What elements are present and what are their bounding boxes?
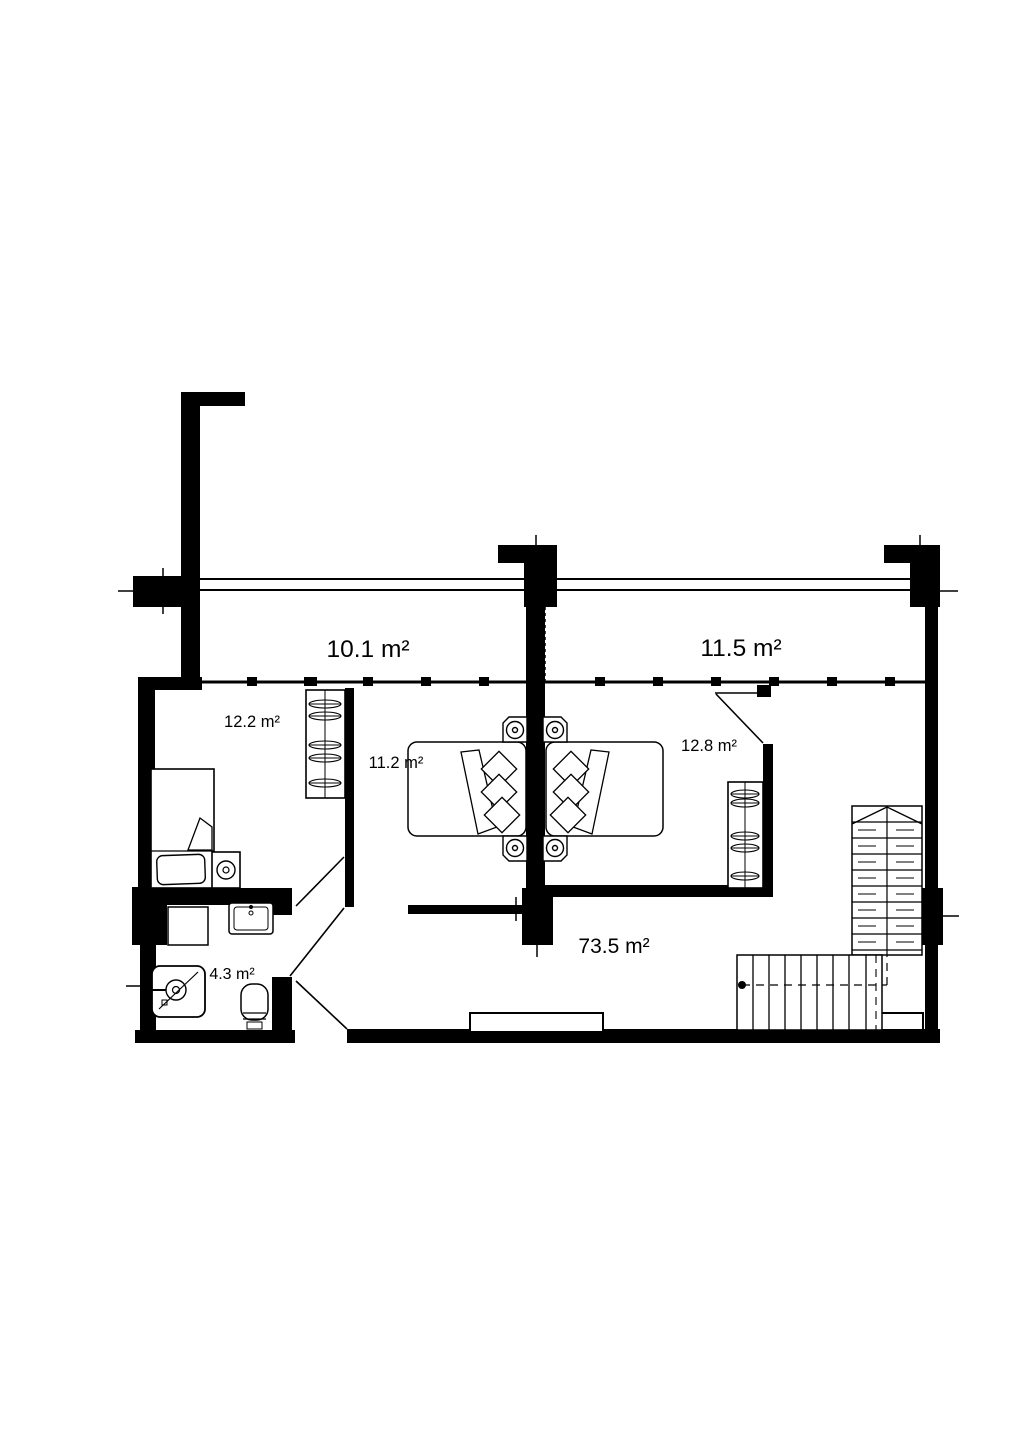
- floor-plan-page: 10.1 m² 11.5 m² 12.2 m² 11.2 m² 12.8 m² …: [0, 0, 1018, 1440]
- living-hall-area-label: 73.5 m²: [578, 935, 649, 958]
- pillow-icon: [157, 854, 206, 885]
- washer-box-icon: [168, 907, 208, 945]
- sink-icon: [229, 903, 273, 934]
- toilet-icon: [241, 984, 268, 1029]
- floor-plan-canvas: 10.1 m² 11.5 m² 12.2 m² 11.2 m² 12.8 m² …: [0, 0, 1018, 1440]
- stair-start-dot: [738, 981, 746, 989]
- bedroom-left-area-label: 12.2 m²: [224, 713, 280, 731]
- washing-machine-icon: [212, 852, 240, 888]
- bathroom-area-label: 4.3 m²: [209, 966, 255, 983]
- window-band: [200, 677, 925, 686]
- balcony-left-area-label: 10.1 m²: [326, 636, 409, 663]
- wardrobe-icon: [306, 690, 345, 798]
- bedroom-right-area-label: 12.8 m²: [681, 737, 737, 755]
- single-bed-icon: [151, 769, 214, 888]
- bedroom-center-area-label: 11.2 m²: [369, 754, 424, 772]
- balcony-right-area-label: 11.5 m²: [700, 635, 781, 662]
- wardrobe-icon: [728, 782, 763, 888]
